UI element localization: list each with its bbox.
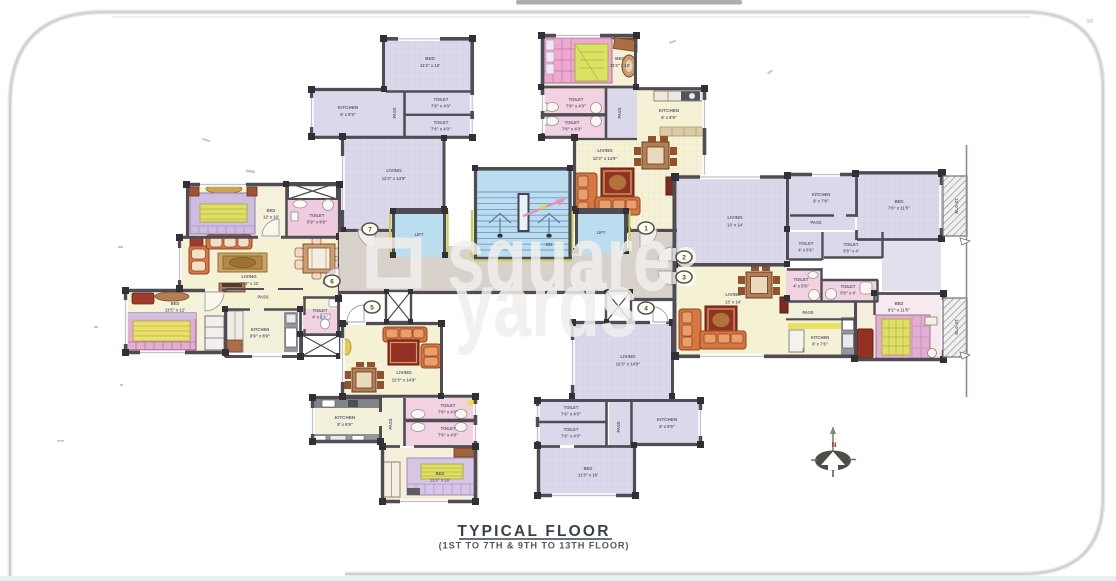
svg-text:(1ST TO 7TH & 9TH TO 13TH FLOO: (1ST TO 7TH & 9TH TO 13TH FLOOR)	[439, 541, 630, 551]
svg-text:yards: yards	[455, 254, 638, 356]
svg-text:N: N	[831, 442, 836, 449]
svg-text:TYPICAL FLOOR: TYPICAL FLOOR	[457, 523, 610, 540]
